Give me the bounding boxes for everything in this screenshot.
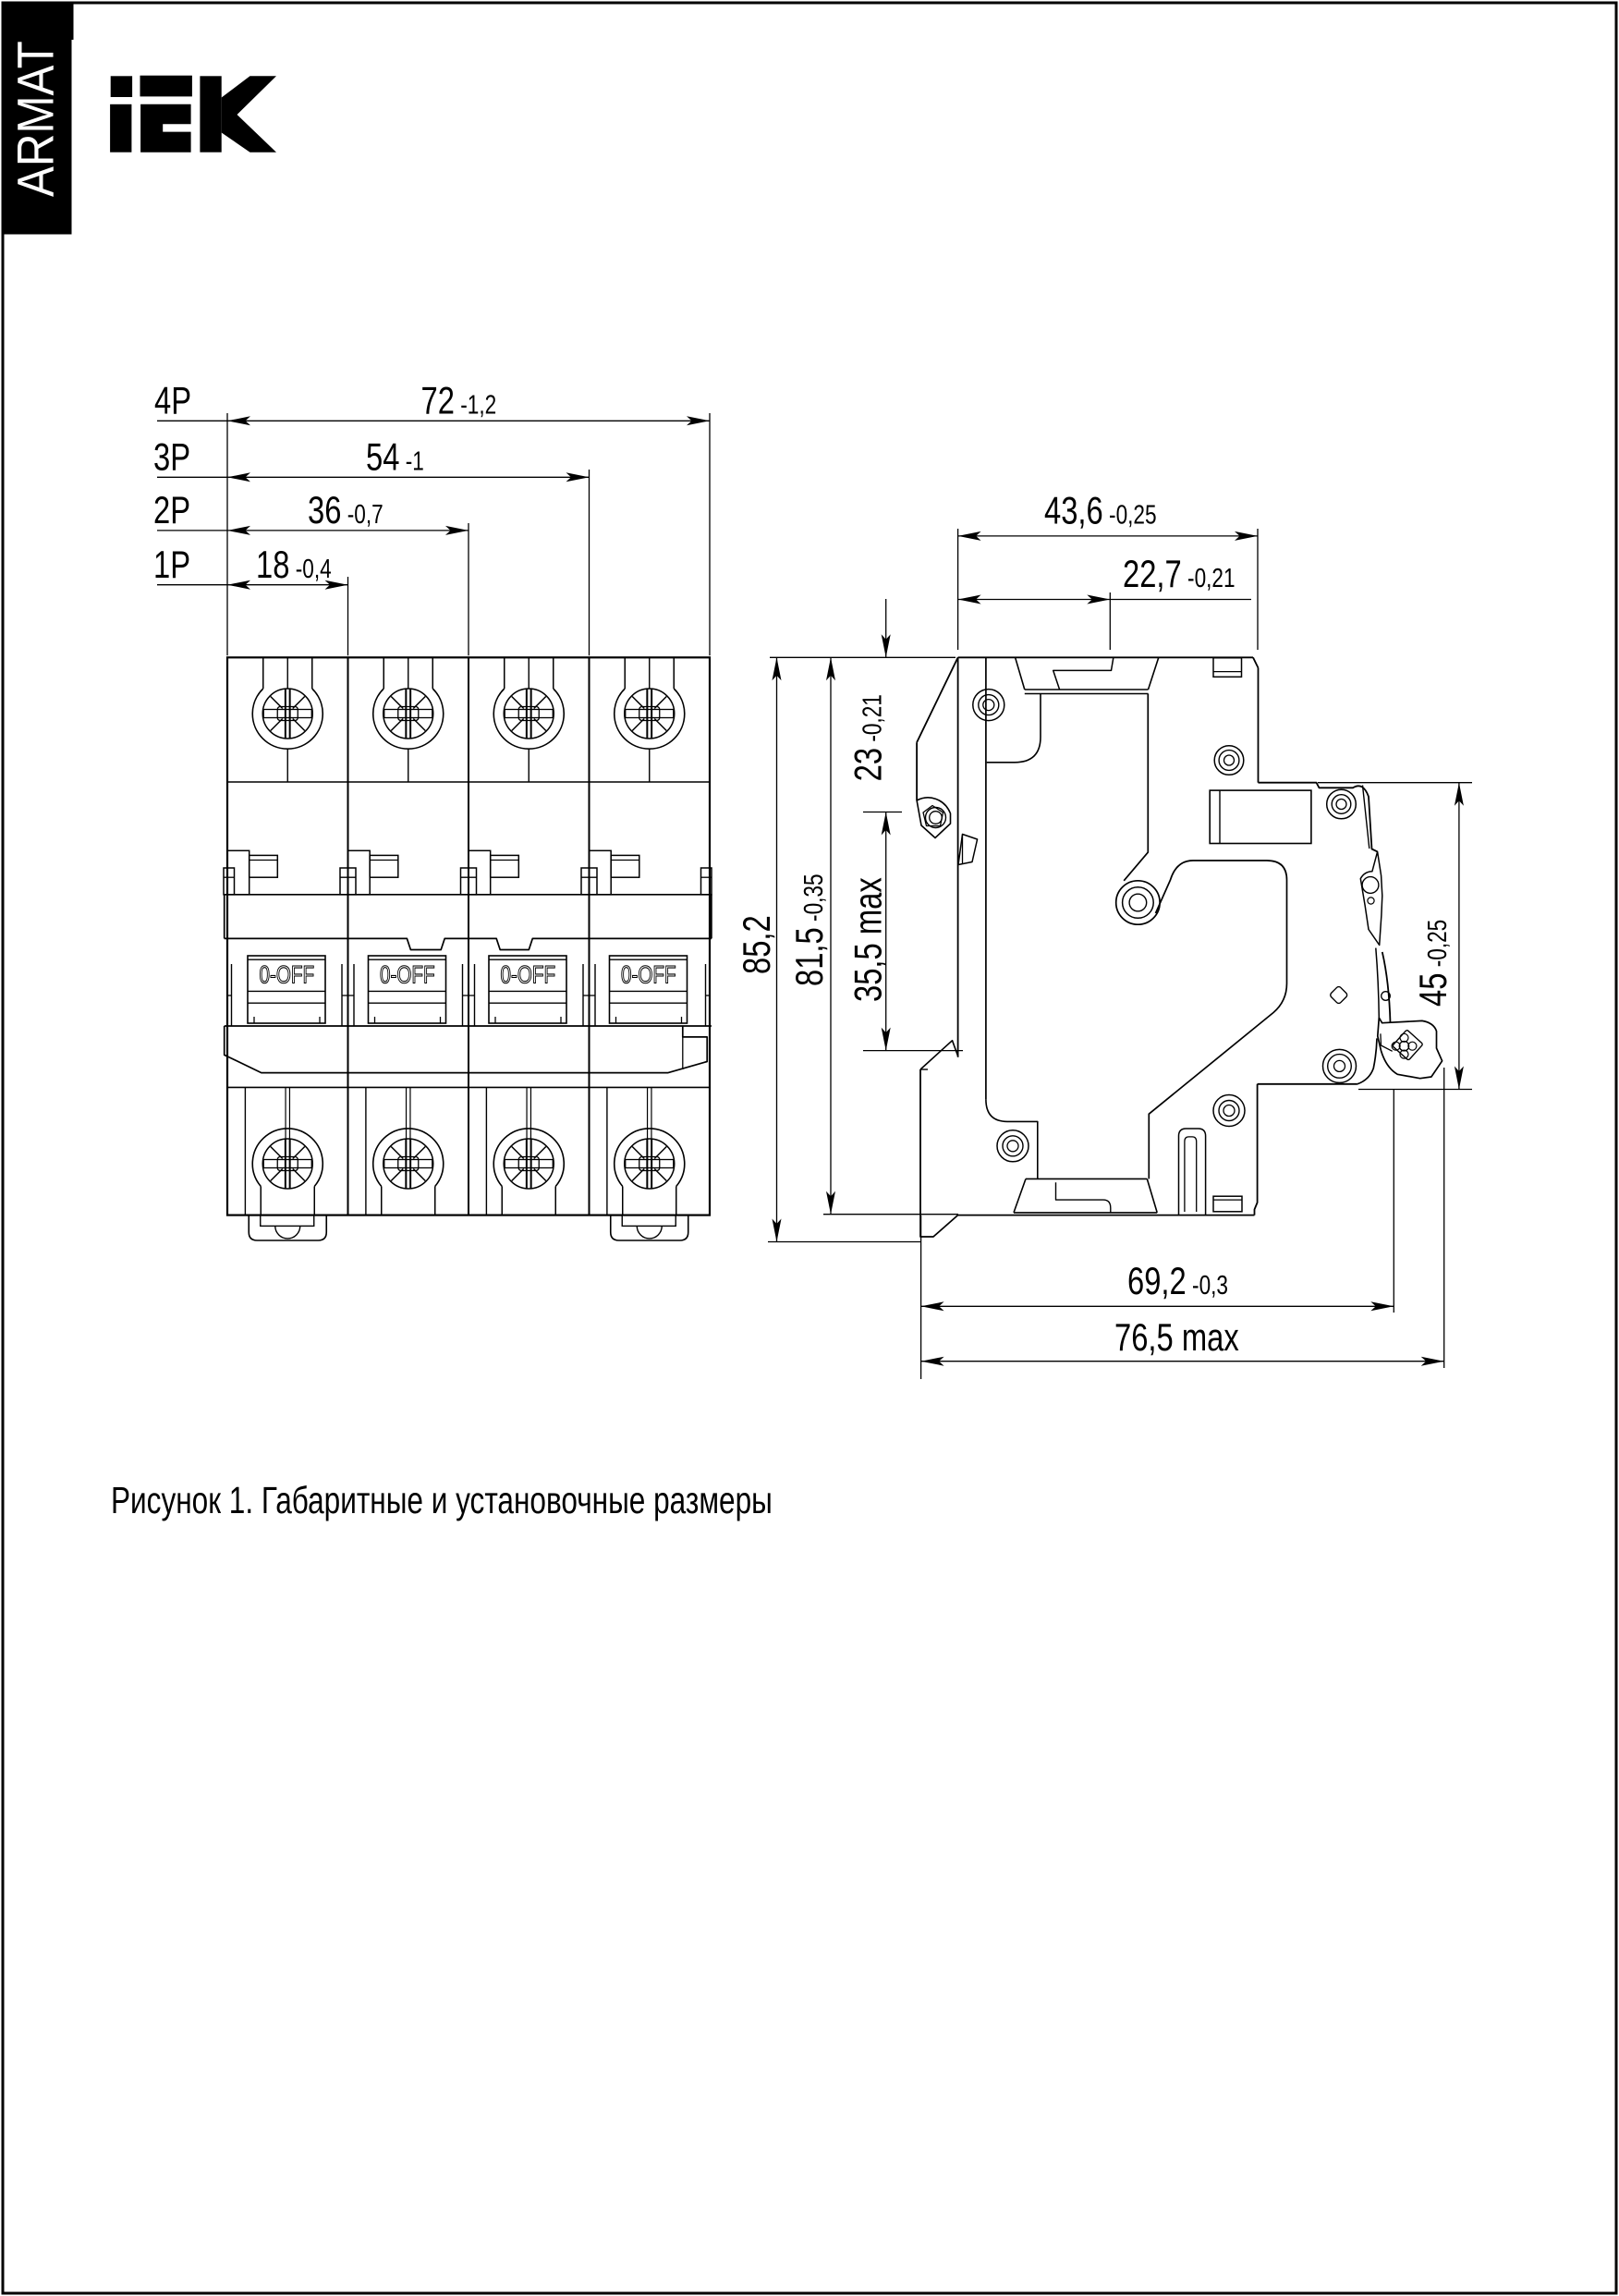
svg-text:0-OFF: 0-OFF [500,961,555,989]
svg-text:35,5 max: 35,5 max [846,877,890,1002]
svg-text:85,2: 85,2 [735,915,778,974]
svg-text:4P: 4P [154,379,191,422]
svg-text:ARMAT: ARMAT [7,41,66,197]
svg-text:3P: 3P [153,435,190,479]
svg-text:0-OFF: 0-OFF [621,961,676,989]
svg-text:0-OFF: 0-OFF [380,961,435,989]
svg-text:2P: 2P [153,488,190,531]
svg-text:76,5 max: 76,5 max [1114,1315,1239,1359]
svg-text:0-OFF: 0-OFF [259,961,314,989]
svg-text:1P: 1P [153,543,190,586]
svg-text:Рисунок 1. Габаритные и устано: Рисунок 1. Габаритные и установочные раз… [111,1479,773,1521]
